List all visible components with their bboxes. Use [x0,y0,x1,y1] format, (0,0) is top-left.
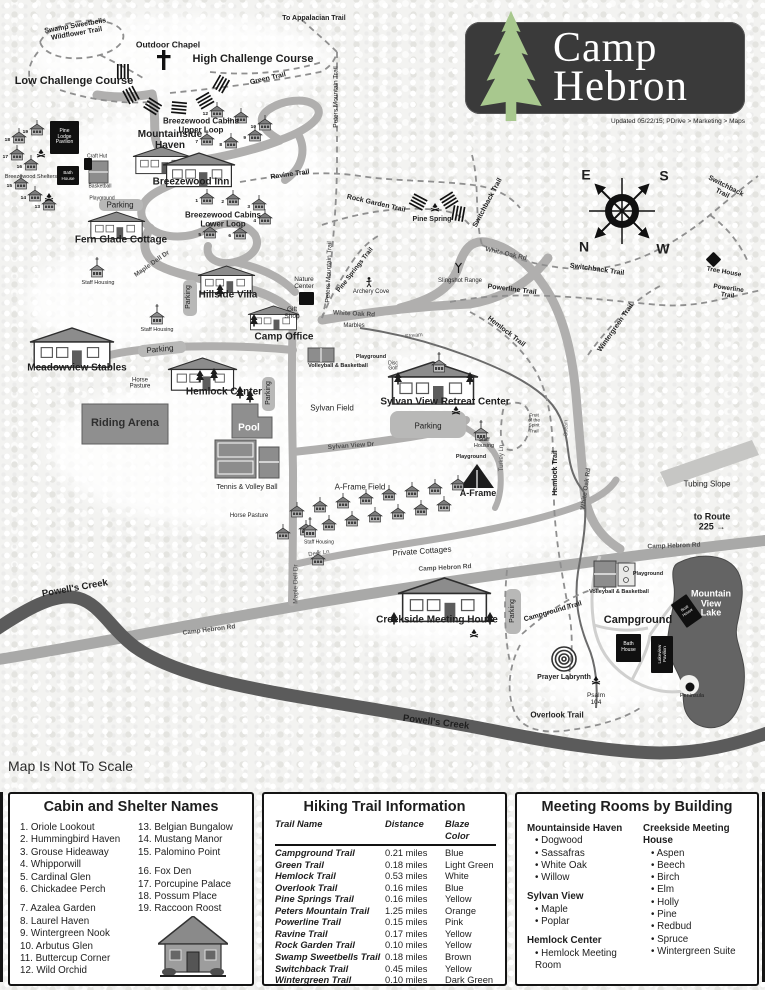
trail-row: Pine Springs Trail0.16 milesYellow [275,894,496,906]
cabin-list-item: 9. Wintergreen Nook [20,928,120,940]
cabin-list-item: 3. Grouse Hideaway [20,847,120,859]
map-label: Peters Mountain Trail [324,241,333,303]
logo-title-line2: Hebron [553,62,688,111]
trail-distance-cell: 0.15 miles [385,917,445,929]
map-label: Powerline Trail [709,282,748,301]
trail-distance-cell: 1.25 miles [385,906,445,918]
map-label: Ravine Trail [270,169,310,182]
trail-header-cell: Distance [385,819,445,842]
map-label: Slingshot Range [438,278,482,284]
cabin-list-item: 17. Porcupine Palace [138,879,233,891]
map-label: Volleyball & Basketball [589,590,649,596]
map-label: Powell's Creek [402,714,469,732]
map-label: Camp Office [255,333,314,344]
trail-name-cell: Wintergreen Trail [275,975,385,987]
trail-name-cell: Switchback Trail [275,964,385,976]
trail-distance-cell: 0.21 miles [385,848,445,860]
map-label: Pine Springs Trail [335,246,374,294]
meeting-room-item: • Pine [643,909,749,921]
map-label: Psalm 104 [587,692,605,706]
cabin-shelter-names-panel: Cabin and Shelter Names 1. Oriole Lookou… [8,792,254,986]
trail-distance-cell: 0.53 miles [385,871,445,883]
cabin-house-icon [158,916,228,978]
map-label: To Appalacian Trail [282,15,345,23]
trail-name-cell: Campground Trail [275,848,385,860]
map-label: Hemlock Center [186,388,262,399]
meeting-room-item: • Spruce [643,934,749,946]
map-label: Maple Dell Dr [133,249,171,278]
map-label: Switchback Trail [472,177,504,229]
building-heading: Creekside Meeting House [643,823,749,848]
cabin-list-item: 5. Cardinal Glen [20,872,120,884]
trail-blaze-cell: Yellow [445,929,496,941]
building-heading: Hemlock Center [527,935,639,947]
trail-blaze-cell: Brown [445,952,496,964]
trail-name-cell: Peters Mountain Trail [275,906,385,918]
cabin-list-item: 11. Buttercup Corner [20,953,120,965]
map-label: Stream [564,420,569,436]
map-label: Riding Arena [91,418,159,430]
meeting-room-item: • Beech [643,860,749,872]
list-spacer [527,928,639,935]
trail-name-cell: Swamp Sweetbells Trail [275,952,385,964]
map-label: A-Frame Field [335,484,386,493]
trail-row: Swamp Sweetbells Trail0.18 milesBrown [275,952,496,964]
map-label: Peters Mountain Trail [332,66,339,127]
map-label: Volleyball & Basketball [308,364,368,370]
updated-note: Updated 05/22/15; PDrive > Marketing > M… [611,118,745,125]
meeting-room-item: • Sassafras [527,848,639,860]
map-label: Powerline Trail [487,283,537,297]
trail-blaze-cell: Yellow [445,940,496,952]
trail-row: Rock Garden Trail0.10 milesYellow [275,940,496,952]
map-label: White Oak Rd [485,246,528,262]
map-label: Sylvan Field [310,405,354,414]
map-label: Sylvan View Dr [328,441,375,451]
trail-row: Switchback Trail0.45 milesYellow [275,964,496,976]
map-label: Playground [633,572,663,578]
camp-hebron-logo: Camp Hebron [465,22,745,114]
rooms-col-right: Creekside Meeting House• Aspen• Beech• B… [643,823,749,965]
cabin-list-item: 2. Hummingbird Haven [20,834,120,846]
map-label: S [659,168,668,183]
map-label: Mountainside Haven [138,130,202,152]
trail-table: Trail NameDistanceBlaze ColorCampground … [275,819,496,987]
list-spacer [20,896,120,903]
map-label: Campground Trail [523,600,583,624]
meeting-room-item: • Dogwood [527,835,639,847]
cabin-list-item: 4. Whipporwill [20,859,120,871]
map-label: Parking [106,202,133,211]
trail-blaze-cell: Blue [445,848,496,860]
cabins-panel-title: Cabin and Shelter Names [10,799,252,815]
hiking-trail-info-panel: Hiking Trail Information Trail NameDista… [262,792,507,986]
trail-distance-cell: 0.16 miles [385,883,445,895]
map-label: Staff Housing [141,328,174,334]
map-label: Fern Glade Cottage [75,236,167,247]
map-label: Hemlock Trail [486,315,527,349]
meeting-room-item: • Redbud [643,921,749,933]
map-label: Horse Pasture [230,513,268,519]
trail-distance-cell: 0.45 miles [385,964,445,976]
map-label: Marbles [343,323,364,329]
trail-distance-cell: 0.16 miles [385,894,445,906]
map-label: Playground [89,196,114,201]
map-label: Camp Hebron Rd [647,542,700,551]
map-label: Switchback Trail [702,174,745,206]
map-label: Parking [265,381,273,405]
trail-distance-cell: 0.10 miles [385,975,445,987]
cabin-list-item: 14. Mustang Manor [138,834,233,846]
map-label: Horse Pasture [130,378,151,391]
map-label: High Challenge Course [192,54,313,66]
map-label: Turkey Ln [499,445,505,471]
trail-blaze-cell: Light Green [445,860,496,872]
cabin-list-item: 16. Fox Den [138,866,233,878]
trail-header-cell: Blaze Color [445,819,496,842]
map-label: Low Challenge Course [15,76,134,88]
cabin-list-item: 7. Azalea Garden [20,903,120,915]
map-label: Camp Hebron Rd [418,563,471,573]
map-label: Sylvan View Retreat Center [380,398,509,409]
cabin-list-item: 18. Possum Place [138,891,233,903]
map-label: Rock Garden Trail [346,194,406,215]
trail-blaze-cell: Dark Green [445,975,496,987]
rooms-col-left: Mountainside Haven• Dogwood• Sassafras• … [527,823,639,979]
map-label: Tree House [706,266,742,279]
map-label: Fruit of the Spirit Trail [528,414,540,435]
map-label: W [656,241,669,256]
trail-table-header: Trail NameDistanceBlaze Color [275,819,496,846]
trail-header-cell: Trail Name [275,819,385,842]
list-spacer [643,958,749,965]
trail-row: Peters Mountain Trail1.25 milesOrange [275,906,496,918]
map-label: Pine Spring [413,216,452,224]
meeting-room-item: • Holly [643,897,749,909]
trail-blaze-cell: White [445,871,496,883]
map-label: White Oak Rd [580,468,593,511]
pine-tree-logo-icon [476,6,546,130]
map-label: Creekside Meeting House [376,616,498,627]
map-label: to Route 225 → [686,512,739,531]
map-label-layer: Swamp Sweetbells Wildflower TrailOutdoor… [0,0,765,770]
trail-blaze-cell: Yellow [445,964,496,976]
meeting-room-item: • Maple [527,904,639,916]
trail-blaze-cell: Blue [445,883,496,895]
map-label: Switchback Trail [569,262,624,277]
cabin-list-item: 8. Laurel Haven [20,916,120,928]
map-label: Maple Dell Dr [292,564,299,603]
trail-row: Overlook Trail0.16 milesBlue [275,883,496,895]
map-label: A-Frame [460,489,497,499]
map-label: Parking [185,285,193,309]
trail-row: Campground Trail0.21 milesBlue [275,848,496,860]
map-label: Staff Housing [474,438,494,450]
map-label: Hillside Villa [199,291,258,302]
map-label: Staff Housing [304,540,334,545]
trails-panel-title: Hiking Trail Information [264,799,505,815]
map-label: Hemlock Trail [552,450,560,496]
map-label: Breezewood Shelters [5,175,57,181]
cabin-list-item: 12. Wild Orchid [20,965,120,977]
map-label: Gift Shop [284,306,299,320]
trail-blaze-cell: Pink [445,917,496,929]
map-label: Camp Hebron Rd [182,623,236,636]
map-label: Parking [146,344,174,355]
meeting-room-item: • Poplar [527,916,639,928]
map-label: White Oak Rd [333,309,376,318]
map-label: Wintergreen Trail [597,302,636,353]
meeting-room-item: • White Oak [527,860,639,872]
cabin-list-item: 13. Belgian Bungalow [138,822,233,834]
cabin-list-col2: 13. Belgian Bungalow14. Mustang Manor15.… [138,822,233,916]
map-label: Campground [604,615,672,627]
cabin-list-item: 1. Oriole Lookout [20,822,120,834]
map-label: Tubing Slope [684,481,731,490]
map-label: Overlook Trail [530,712,583,721]
trail-name-cell: Green Trail [275,860,385,872]
map-label: N [579,239,589,254]
rooms-panel-title: Meeting Rooms by Building [517,799,757,815]
meeting-room-item: • Wintergreen Suite [643,946,749,958]
map-label: Breezewood Inn [153,178,230,189]
trail-distance-cell: 0.18 miles [385,860,445,872]
trail-blaze-cell: Yellow [445,894,496,906]
map-label: Green Trail [249,71,286,87]
trail-row: Ravine Trail0.17 milesYellow [275,929,496,941]
trail-row: Green Trail0.18 milesLight Green [275,860,496,872]
camp-map-page: 12111078912345619181716151413 Pine Lodge… [0,0,765,990]
trail-name-cell: Powerline Trail [275,917,385,929]
meeting-room-item: • Hemlock Meeting Room [527,948,639,973]
map-label: Breezewood Cabins Lower Loop [185,211,261,228]
trail-name-cell: Hemlock Trail [275,871,385,883]
map-label: Meadowview Stables [27,364,126,375]
map-label: Tennis & Volley Ball [216,484,277,492]
map-label: Nature Center [294,276,314,290]
meeting-room-item: • Elm [643,884,749,896]
trail-name-cell: Pine Springs Trail [275,894,385,906]
cabin-list-item: 19. Raccoon Roost [138,903,233,915]
meeting-rooms-panel: Meeting Rooms by Building Mountainside H… [515,792,759,986]
cabin-list-item: 6. Chickadee Perch [20,884,120,896]
meeting-room-item: • Aspen [643,848,749,860]
trail-row: Powerline Trail0.15 milesPink [275,917,496,929]
building-heading: Sylvan View [527,891,639,903]
map-label: Peninsula [680,694,704,700]
map-label: Stream [405,333,423,341]
map-label: Outdoor Chapel [136,40,200,49]
map-label: Playground [456,455,486,461]
map-label: Parking [509,599,517,623]
trail-blaze-cell: Orange [445,906,496,918]
map-label: Breezewood Cabins Upper Loop [163,117,239,134]
left-panel-edge [0,792,3,982]
map-label: Craft Hut [87,154,107,159]
map-label: Playground [356,355,386,361]
map-label: Swamp Sweetbells Wildflower Trail [44,17,108,43]
map-label: Parking [414,423,441,432]
cabin-list-col1: 1. Oriole Lookout2. Hummingbird Haven3. … [20,822,120,978]
map-label: Basketball [88,184,111,189]
map-label: Prayer Labrynth [537,674,591,682]
trail-distance-cell: 0.10 miles [385,940,445,952]
list-spacer [138,859,233,866]
map-label: Deer Ln [308,549,330,558]
trail-distance-cell: 0.17 miles [385,929,445,941]
map-label: Archery Cove [353,289,389,295]
list-spacer [527,884,639,891]
map-label: Staff Housing [82,281,115,287]
map-label: Private Cottages [392,546,452,559]
meeting-room-item: • Birch [643,872,749,884]
trail-distance-cell: 0.18 miles [385,952,445,964]
trail-name-cell: Overlook Trail [275,883,385,895]
map-label: E [581,167,590,182]
map-label: Disc Golf [388,362,398,373]
meeting-room-item: • Willow [527,872,639,884]
trail-row: Wintergreen Trail0.10 milesDark Green [275,975,496,987]
trail-name-cell: Ravine Trail [275,929,385,941]
map-label: Mountain View Lake [691,589,731,618]
trail-row: Hemlock Trail0.53 milesWhite [275,871,496,883]
list-spacer [527,972,639,979]
building-heading: Mountainside Haven [527,823,639,835]
map-label: Powell's Creek [41,578,108,600]
map-scale-note: Map Is Not To Scale [8,758,133,774]
map-label: Pool [238,424,260,435]
trail-name-cell: Rock Garden Trail [275,940,385,952]
cabin-list-item: 15. Palomino Point [138,847,233,859]
cabin-list-item: 10. Arbutus Glen [20,941,120,953]
